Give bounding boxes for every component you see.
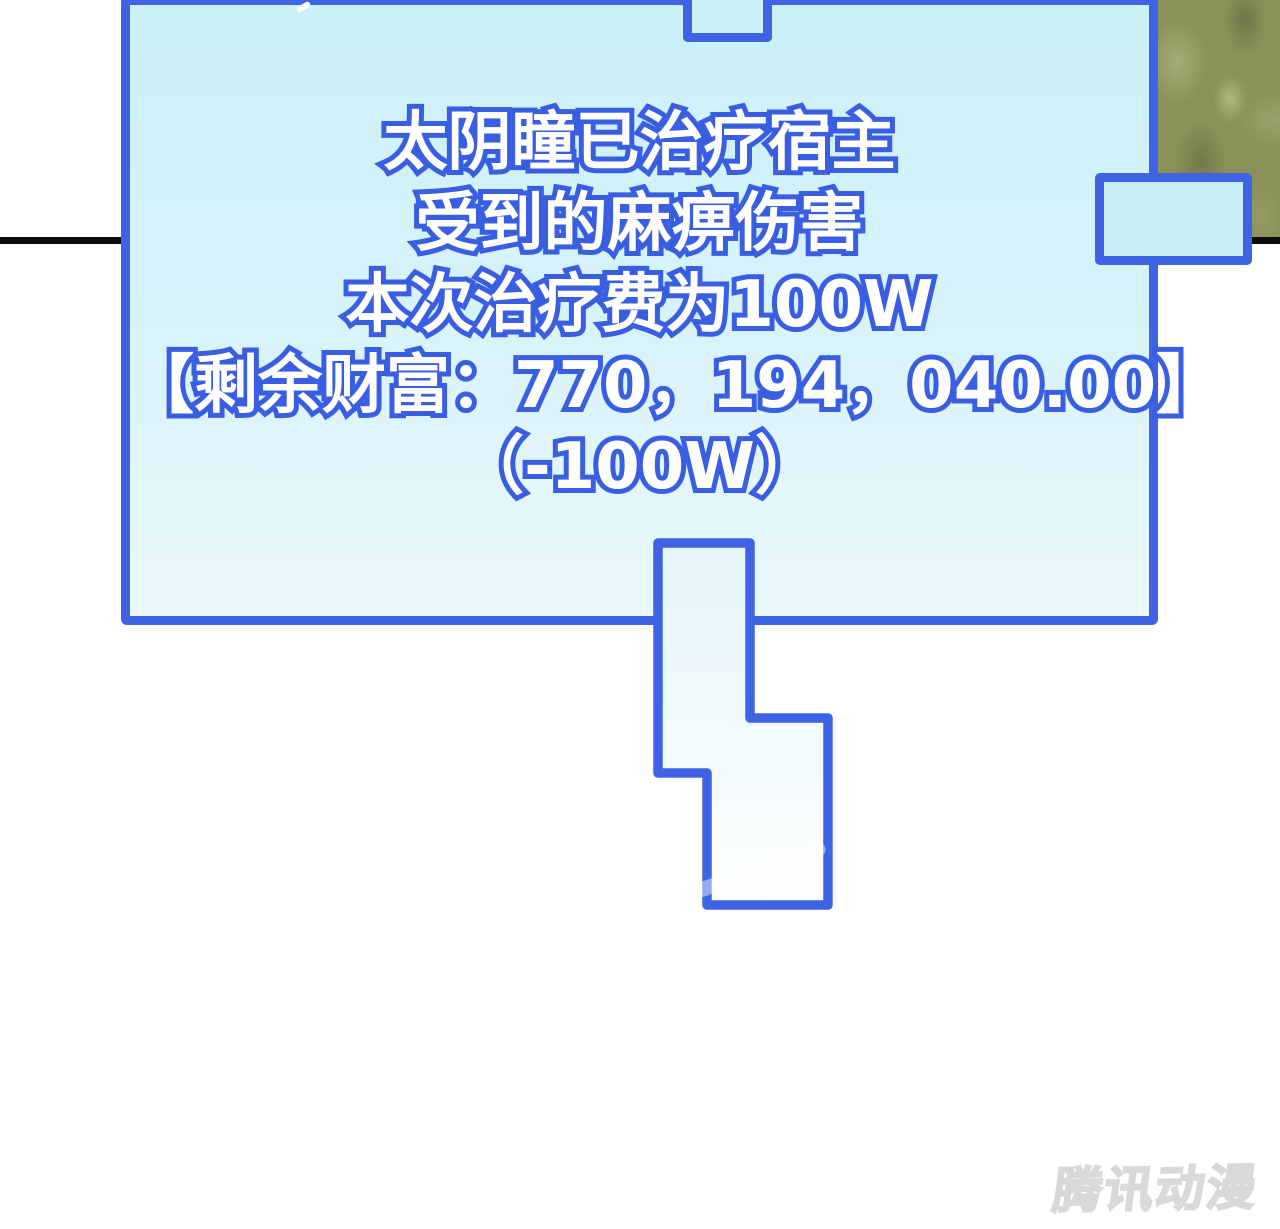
- dialog-line-2: 受到的麻痹伤害: [130, 184, 1149, 265]
- dialog-line-1: 太阴瞳已治疗宿主: [130, 103, 1149, 184]
- dialog-line-5: （-100W）: [130, 427, 1149, 508]
- comic-page: { "page": { "type": "comic-panel", "wate…: [0, 0, 1280, 1229]
- bubble-tail: [645, 530, 845, 920]
- dialog-line-3: 本次治疗费为100W: [130, 265, 1149, 346]
- watermark-logo: 腾讯动漫: [1049, 1148, 1262, 1223]
- bubble-top-notch: [683, 0, 772, 42]
- dialog-line-4: 【剩余财富：770，194，040.00】: [130, 346, 1149, 427]
- dialog-text: 太阴瞳已治疗宿主 受到的麻痹伤害 本次治疗费为100W 【剩余财富：770，19…: [130, 103, 1149, 508]
